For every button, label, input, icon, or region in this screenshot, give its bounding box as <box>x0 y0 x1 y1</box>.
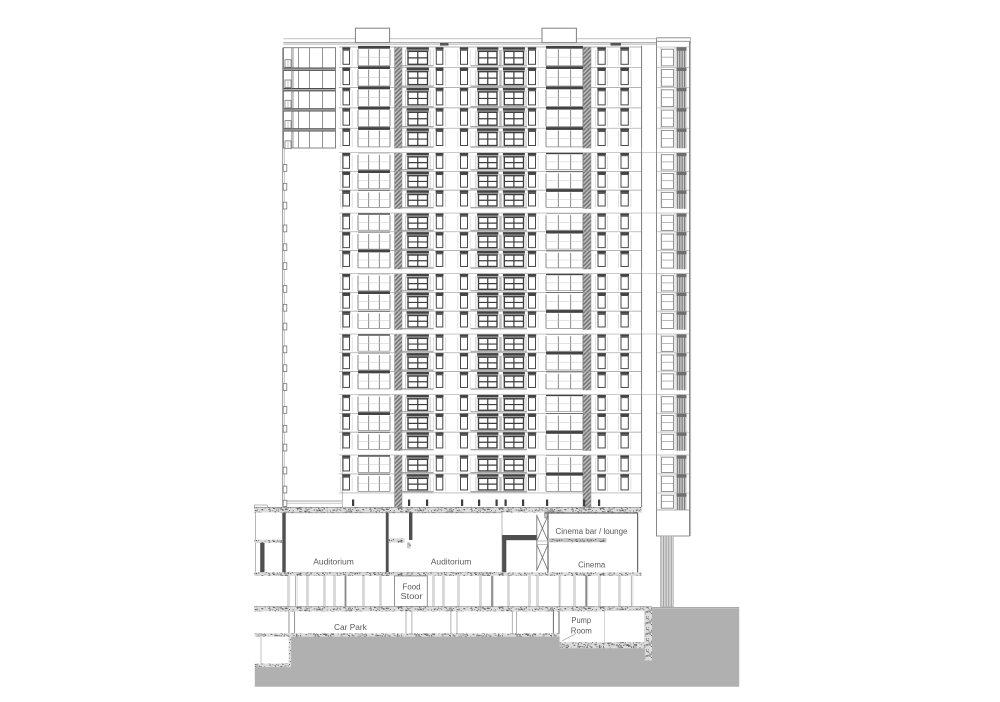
svg-text:Auditorium: Auditorium <box>313 557 354 567</box>
svg-text:Auditorium: Auditorium <box>431 557 472 567</box>
svg-text:Cinema bar / lounge: Cinema bar / lounge <box>556 526 628 536</box>
svg-text:Cinema: Cinema <box>578 559 605 569</box>
svg-text:Car Park: Car Park <box>334 622 367 632</box>
svg-text:Pump: Pump <box>572 615 592 625</box>
svg-text:Room: Room <box>571 625 592 635</box>
svg-text:Stoor: Stoor <box>401 591 423 601</box>
